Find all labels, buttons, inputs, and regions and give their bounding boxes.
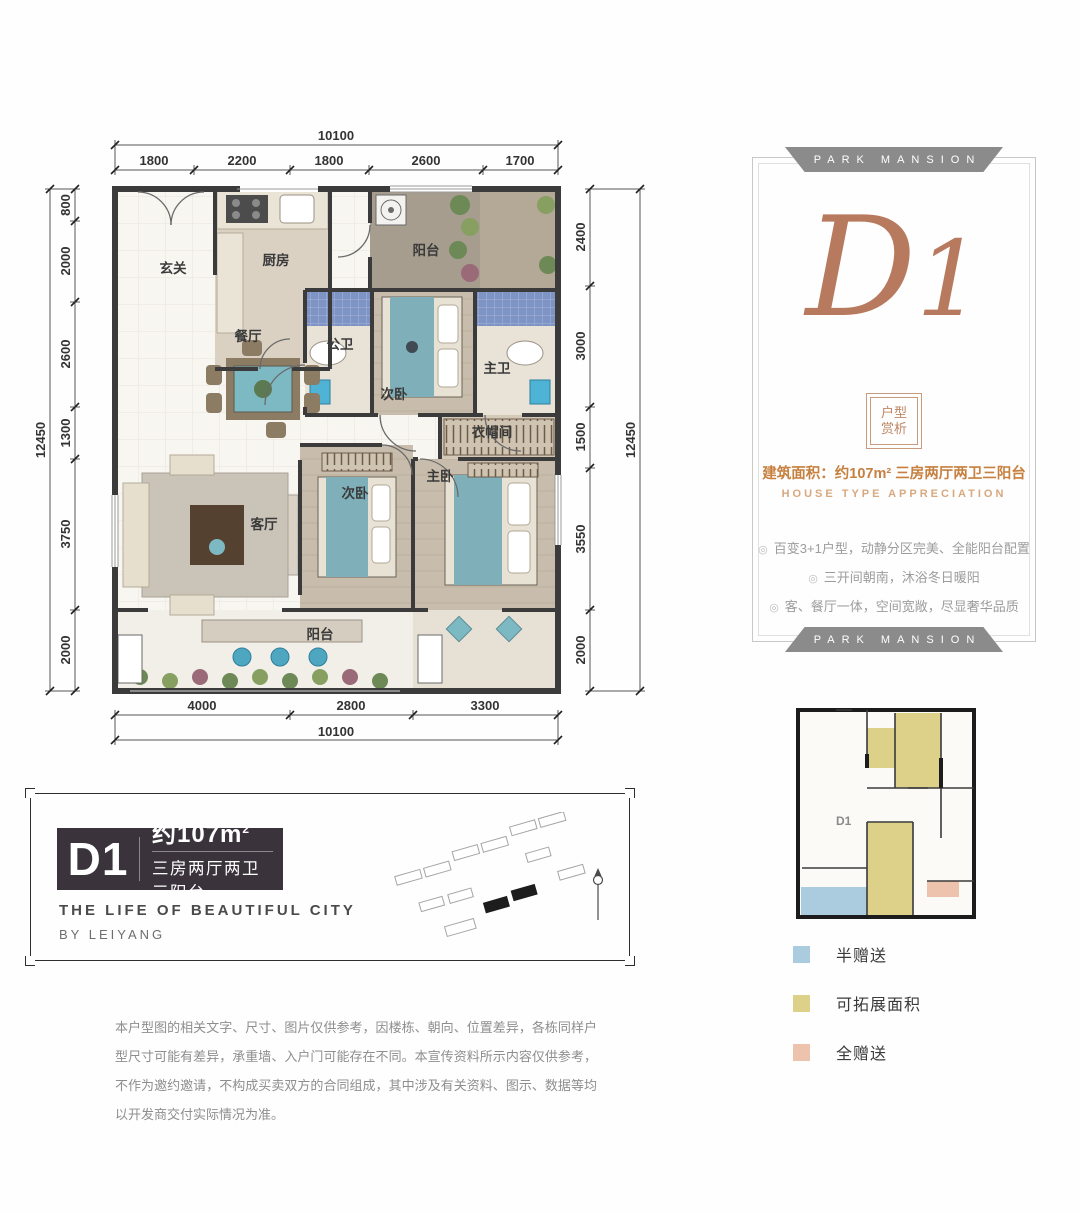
park-mansion-banner-bottom: PARK MANSION bbox=[785, 627, 1003, 652]
dim-bottom-2: 2800 bbox=[337, 698, 366, 713]
english-subtitle: HOUSE TYPE APPRECIATION bbox=[748, 488, 1040, 500]
mini-zone-half-gift bbox=[801, 887, 867, 915]
dim-left-5: 3750 bbox=[58, 520, 73, 549]
d1-card: PARK MANSION D1 户型 赏析 建筑面积：约107m² 三房两厅两卫… bbox=[748, 147, 1040, 652]
bullet-icon: ◎ bbox=[808, 573, 818, 585]
corner-ornament bbox=[25, 956, 35, 966]
dim-top-3: 1800 bbox=[315, 153, 344, 168]
page: 玄关 厨房 阳台 公卫 次卧 主卫 餐厅 衣帽间 客厅 次卧 主卧 阳台 bbox=[0, 0, 1080, 1213]
mini-unit-label: D1 bbox=[836, 814, 852, 828]
room-label-cloakroom: 衣帽间 bbox=[472, 424, 513, 440]
area-desc: 三房两厅两卫三阳台 bbox=[891, 466, 1026, 482]
dim-left-4: 1300 bbox=[58, 419, 73, 448]
ac-platform bbox=[118, 635, 142, 683]
legend-row: 全赠送 bbox=[793, 1040, 921, 1064]
dim-right-3: 1500 bbox=[573, 423, 588, 452]
room-label-living: 客厅 bbox=[250, 516, 278, 532]
plaque-area-value: 约107m bbox=[152, 821, 242, 848]
feature-text: 百变3+1户型，动静分区完美、全能阳台配置 bbox=[774, 541, 1030, 556]
dim-top-2: 2200 bbox=[228, 153, 257, 168]
room-label-balcony-top: 阳台 bbox=[413, 242, 440, 258]
dim-left-6: 2000 bbox=[58, 636, 73, 665]
badge-line2: 赏析 bbox=[881, 421, 907, 437]
legend-swatch-full-gift bbox=[793, 1044, 810, 1061]
floorplan-drawing: 玄关 厨房 阳台 公卫 次卧 主卫 餐厅 衣帽间 客厅 次卧 主卧 阳台 bbox=[30, 115, 680, 770]
plaque-rule bbox=[152, 851, 273, 852]
dim-bottom-total: 10100 bbox=[318, 724, 354, 739]
unit-plaque: D1 约107m2 三房两厅两卫三阳台 bbox=[57, 828, 283, 890]
coffee-table bbox=[190, 505, 244, 565]
plaque-right: 约107m2 三房两厅两卫三阳台 bbox=[140, 816, 283, 903]
dim-top-4: 2600 bbox=[412, 153, 441, 168]
plaque-area-sup: 2 bbox=[242, 822, 250, 836]
dim-left-3: 2600 bbox=[58, 340, 73, 369]
legend-label: 半赠送 bbox=[836, 942, 887, 966]
plaque-code: D1 bbox=[57, 832, 139, 886]
legend-label: 全赠送 bbox=[836, 1040, 887, 1064]
room-label-bedroom3: 次卧 bbox=[342, 485, 369, 501]
sofa bbox=[123, 483, 149, 587]
dim-left-1: 800 bbox=[58, 194, 73, 216]
corner-ornament bbox=[625, 788, 635, 798]
north-arrow-icon bbox=[594, 868, 603, 920]
corner-ornament bbox=[25, 788, 35, 798]
mini-zone-full-gift bbox=[927, 881, 959, 897]
dim-top-1: 1800 bbox=[140, 153, 169, 168]
mini-zone-expand-1 bbox=[895, 713, 941, 788]
legend: 半赠送 可拓展面积 全赠送 bbox=[793, 942, 921, 1089]
room-label-master-bedroom: 主卧 bbox=[427, 468, 454, 484]
sink2 bbox=[530, 380, 550, 404]
master-bath-shower bbox=[477, 292, 556, 326]
dim-bottom-1: 4000 bbox=[188, 698, 217, 713]
dim-left-2: 2000 bbox=[58, 247, 73, 276]
park-mansion-banner-top: PARK MANSION bbox=[785, 147, 1003, 172]
unit-code-1: 1 bbox=[916, 218, 982, 340]
armchair bbox=[170, 455, 214, 475]
armchair2 bbox=[170, 595, 214, 615]
stove bbox=[226, 195, 268, 223]
siteplan-map bbox=[382, 812, 617, 942]
legend-swatch-half-gift bbox=[793, 946, 810, 963]
room-label-bedroom2: 次卧 bbox=[381, 386, 408, 402]
legend-row: 可拓展面积 bbox=[793, 991, 921, 1015]
mini-plan-drawing: D1 bbox=[788, 698, 993, 930]
legend-row: 半赠送 bbox=[793, 942, 921, 966]
banner-top-text: PARK MANSION bbox=[807, 154, 982, 166]
kitchen-sink bbox=[280, 195, 314, 223]
ac-platform2 bbox=[418, 635, 442, 683]
toilet2 bbox=[507, 341, 543, 365]
area-line: 建筑面积：约107m² 三房两厅两卫三阳台 bbox=[748, 462, 1040, 483]
public-bath-shower bbox=[307, 292, 370, 326]
tv-console bbox=[288, 495, 298, 575]
dim-right-1: 2400 bbox=[573, 223, 588, 252]
plaque-area: 约107m2 bbox=[152, 816, 273, 848]
room-label-public-bath: 公卫 bbox=[327, 337, 354, 352]
room-label-kitchen: 厨房 bbox=[263, 252, 290, 268]
master-bed-blanket bbox=[454, 475, 502, 585]
dim-right-total: 12450 bbox=[623, 422, 638, 458]
room-label-entry: 玄关 bbox=[160, 260, 187, 276]
corner-ornament bbox=[625, 956, 635, 966]
floorplan-section: 玄关 厨房 阳台 公卫 次卧 主卫 餐厅 衣帽间 客厅 次卧 主卧 阳台 bbox=[30, 115, 680, 775]
dim-right-4: 3550 bbox=[573, 525, 588, 554]
disclaimer-text: 本户型图的相关文字、尺寸、图片仅供参考，因楼栋、朝向、位置差异，各栋同样户型尺寸… bbox=[115, 1013, 597, 1129]
dim-left-total: 12450 bbox=[33, 422, 48, 458]
feature-text: 客、餐厅一体，空间宽敞，尽显奢华品质 bbox=[785, 599, 1019, 614]
mini-zone-expand-3 bbox=[867, 822, 913, 915]
dim-right-2: 3000 bbox=[573, 332, 588, 361]
unit-code-d: D bbox=[806, 187, 917, 348]
badge-line1: 户型 bbox=[881, 405, 907, 421]
feature-item: ◎百变3+1户型，动静分区完美、全能阳台配置 bbox=[748, 535, 1040, 564]
balcony-counter bbox=[202, 620, 362, 642]
room-label-master-bath: 主卫 bbox=[484, 360, 511, 376]
mini-zone-expand-2 bbox=[867, 728, 897, 768]
dim-top-5: 1700 bbox=[506, 153, 535, 168]
kitchen-counter2 bbox=[217, 233, 243, 333]
feature-text: 三开间朝南，沐浴冬日暖阳 bbox=[824, 570, 980, 585]
bullet-icon: ◎ bbox=[758, 544, 768, 556]
dim-right-5: 2000 bbox=[573, 636, 588, 665]
bullet-icon: ◎ bbox=[769, 602, 779, 614]
dim-bottom-3: 3300 bbox=[471, 698, 500, 713]
room-label-balcony-bottom: 阳台 bbox=[307, 626, 334, 642]
banner-bottom-text: PARK MANSION bbox=[807, 634, 982, 646]
plaque-subtitle: 三房两厅两卫三阳台 bbox=[152, 855, 273, 903]
area-value: 约107m² bbox=[835, 466, 891, 482]
feature-item: ◎客、餐厅一体，空间宽敞，尽显奢华品质 bbox=[748, 593, 1040, 622]
dim-top-total: 10100 bbox=[318, 128, 354, 143]
mini-plan-section: D1 bbox=[788, 698, 993, 935]
legend-swatch-expandable bbox=[793, 995, 810, 1012]
tagline-en: THE LIFE OF BEAUTIFUL CITY bbox=[59, 902, 356, 919]
legend-label: 可拓展面积 bbox=[836, 991, 921, 1015]
feature-list: ◎百变3+1户型，动静分区完美、全能阳台配置 ◎三开间朝南，沐浴冬日暖阳 ◎客、… bbox=[748, 535, 1040, 622]
appreciation-badge: 户型 赏析 bbox=[870, 397, 918, 445]
feature-item: ◎三开间朝南，沐浴冬日暖阳 bbox=[748, 564, 1040, 593]
area-label: 建筑面积： bbox=[762, 466, 835, 482]
info-box: D1 约107m2 三房两厅两卫三阳台 THE LIFE OF BEAUTIFU… bbox=[30, 793, 630, 961]
tagline-by: BY LEIYANG bbox=[59, 927, 165, 942]
unit-code-title: D1 bbox=[748, 199, 1040, 337]
room-label-dining: 餐厅 bbox=[234, 328, 262, 344]
